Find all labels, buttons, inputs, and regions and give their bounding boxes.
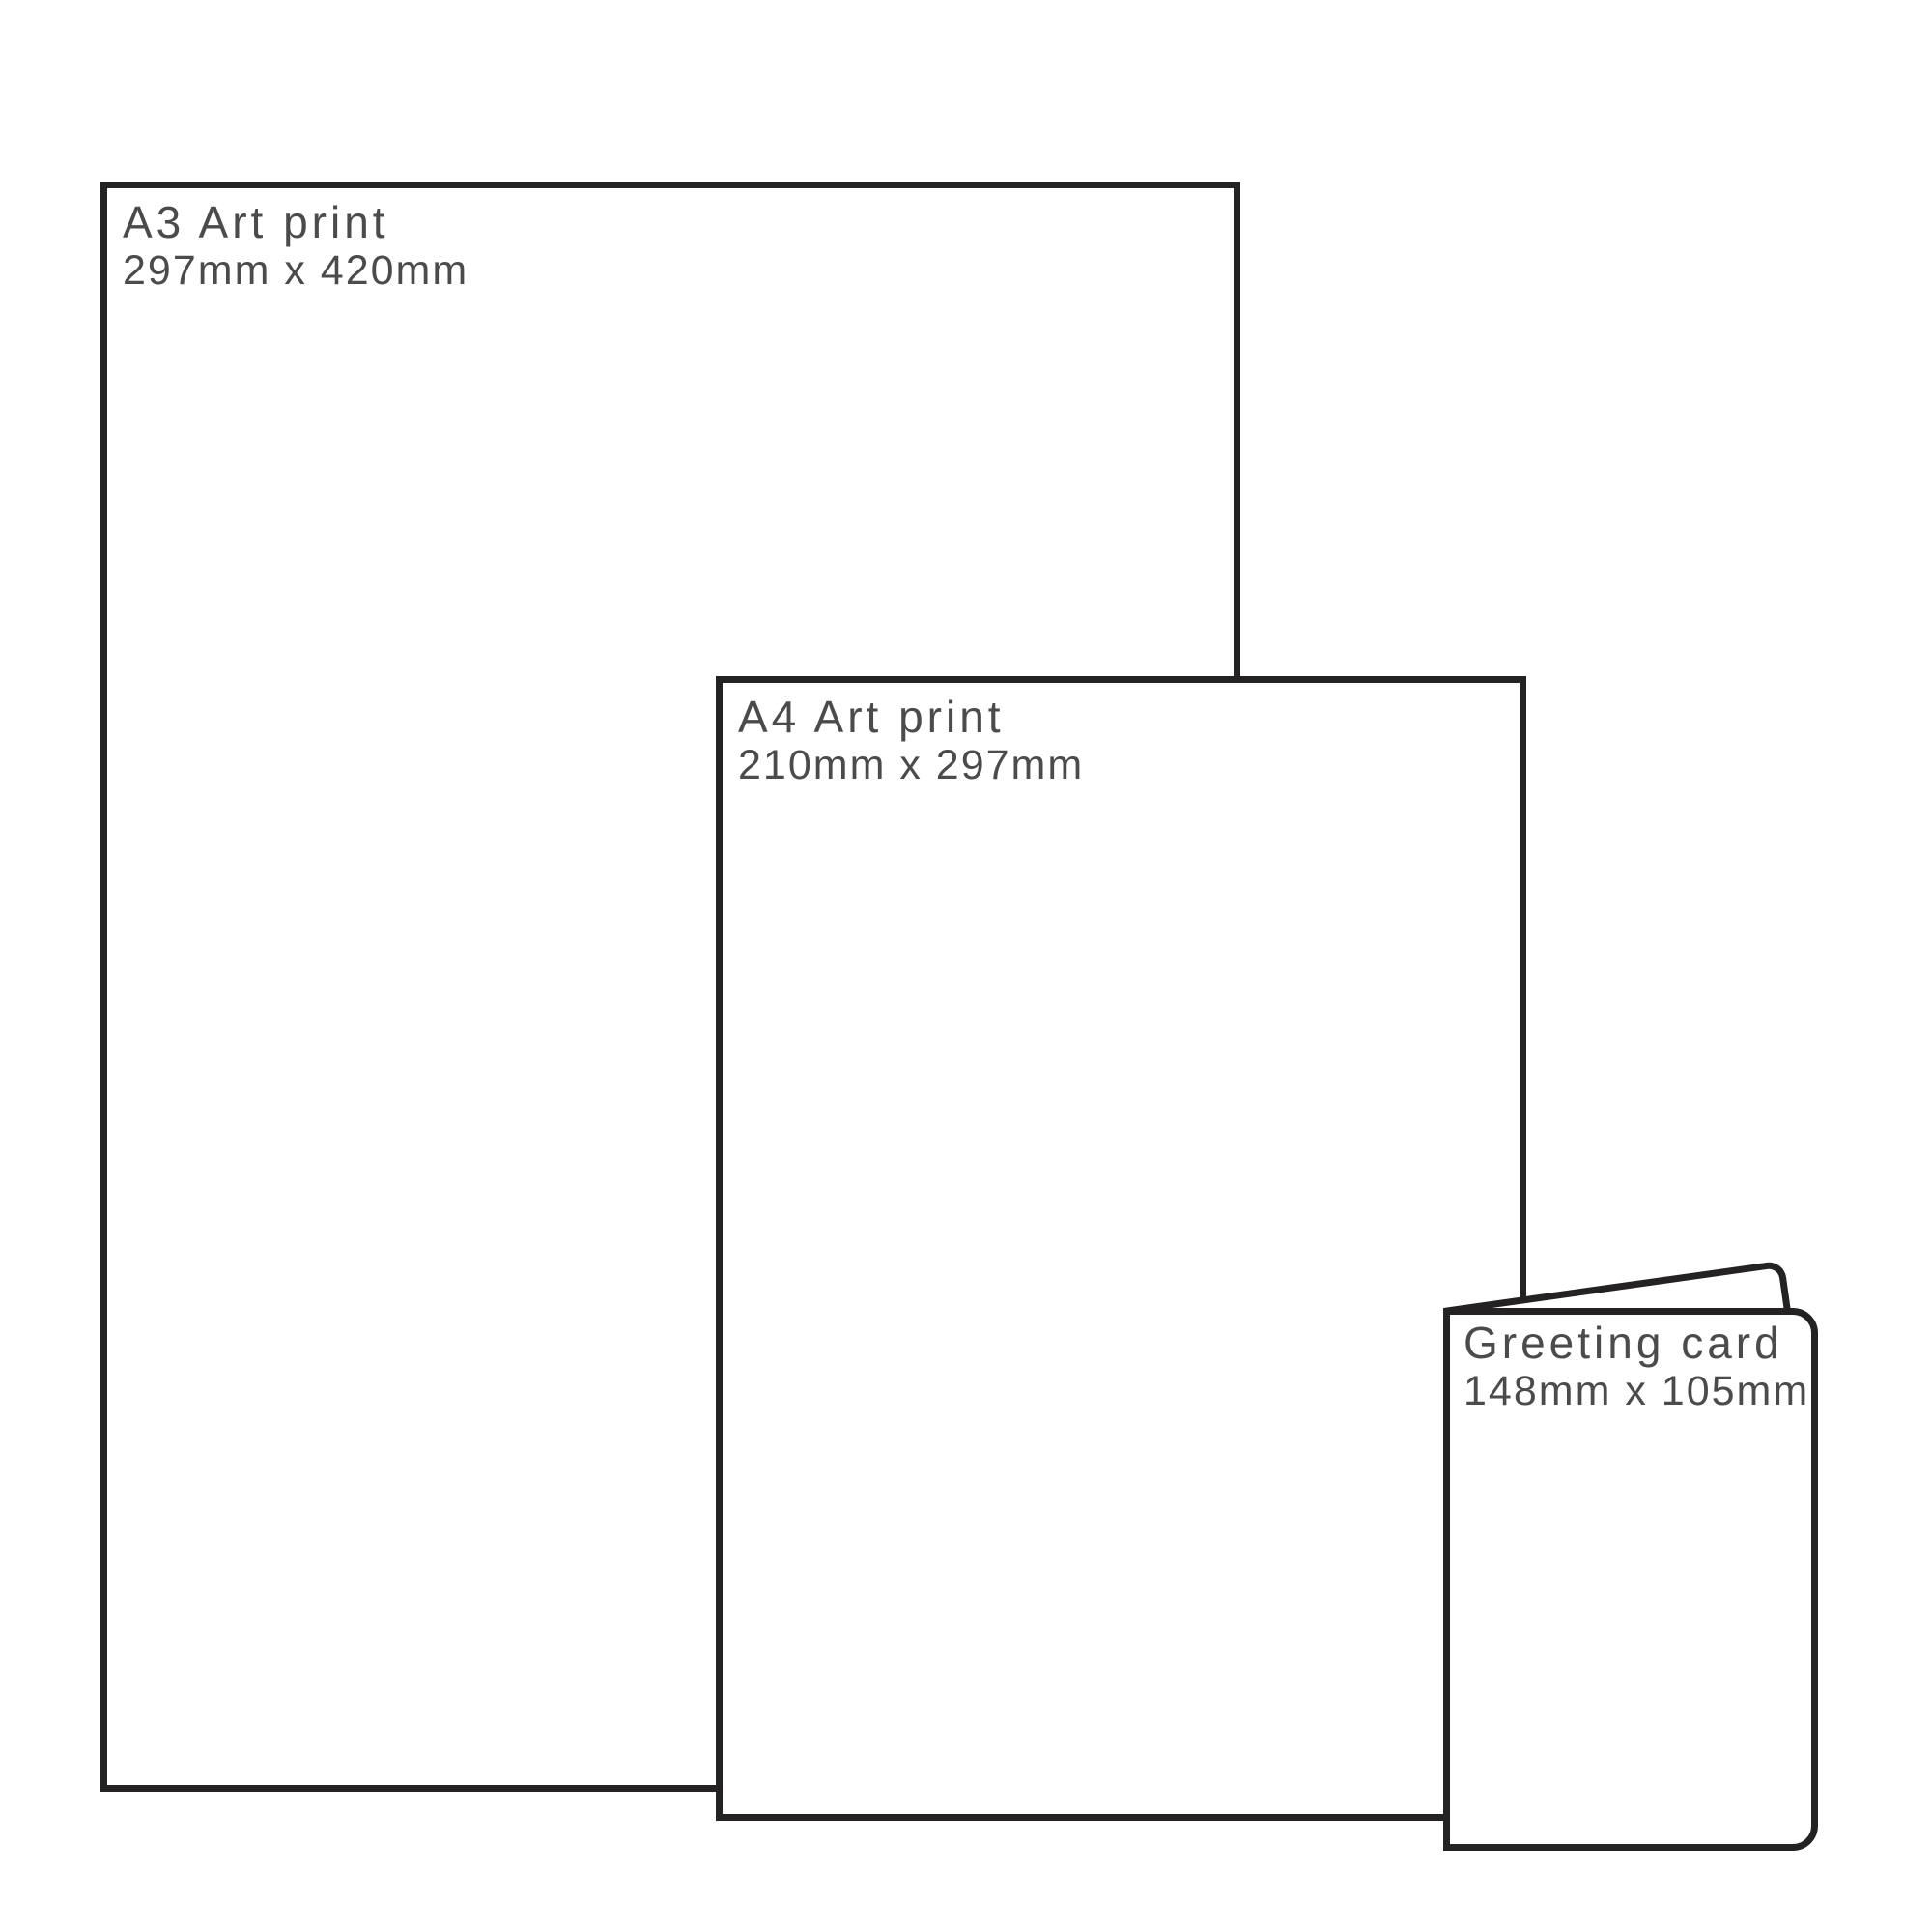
greeting-card-title: Greeting card	[1463, 1317, 1809, 1369]
a4-dimensions: 210mm x 297mm	[738, 743, 1084, 788]
a3-dimensions: 297mm x 420mm	[123, 248, 469, 294]
greeting-card-label: Greeting card 148mm x 105mm	[1463, 1317, 1809, 1414]
a4-title: A4 Art print	[738, 691, 1084, 743]
size-comparison-diagram: A3 Art print 297mm x 420mm A4 Art print …	[0, 0, 1932, 1932]
a4-art-print-outline: A4 Art print 210mm x 297mm	[716, 676, 1526, 1821]
greeting-card-dimensions: 148mm x 105mm	[1463, 1369, 1809, 1414]
greeting-card-front-panel: Greeting card 148mm x 105mm	[1443, 1308, 1818, 1851]
a4-label: A4 Art print 210mm x 297mm	[738, 691, 1084, 788]
a3-label: A3 Art print 297mm x 420mm	[123, 196, 469, 294]
a3-title: A3 Art print	[123, 196, 469, 248]
